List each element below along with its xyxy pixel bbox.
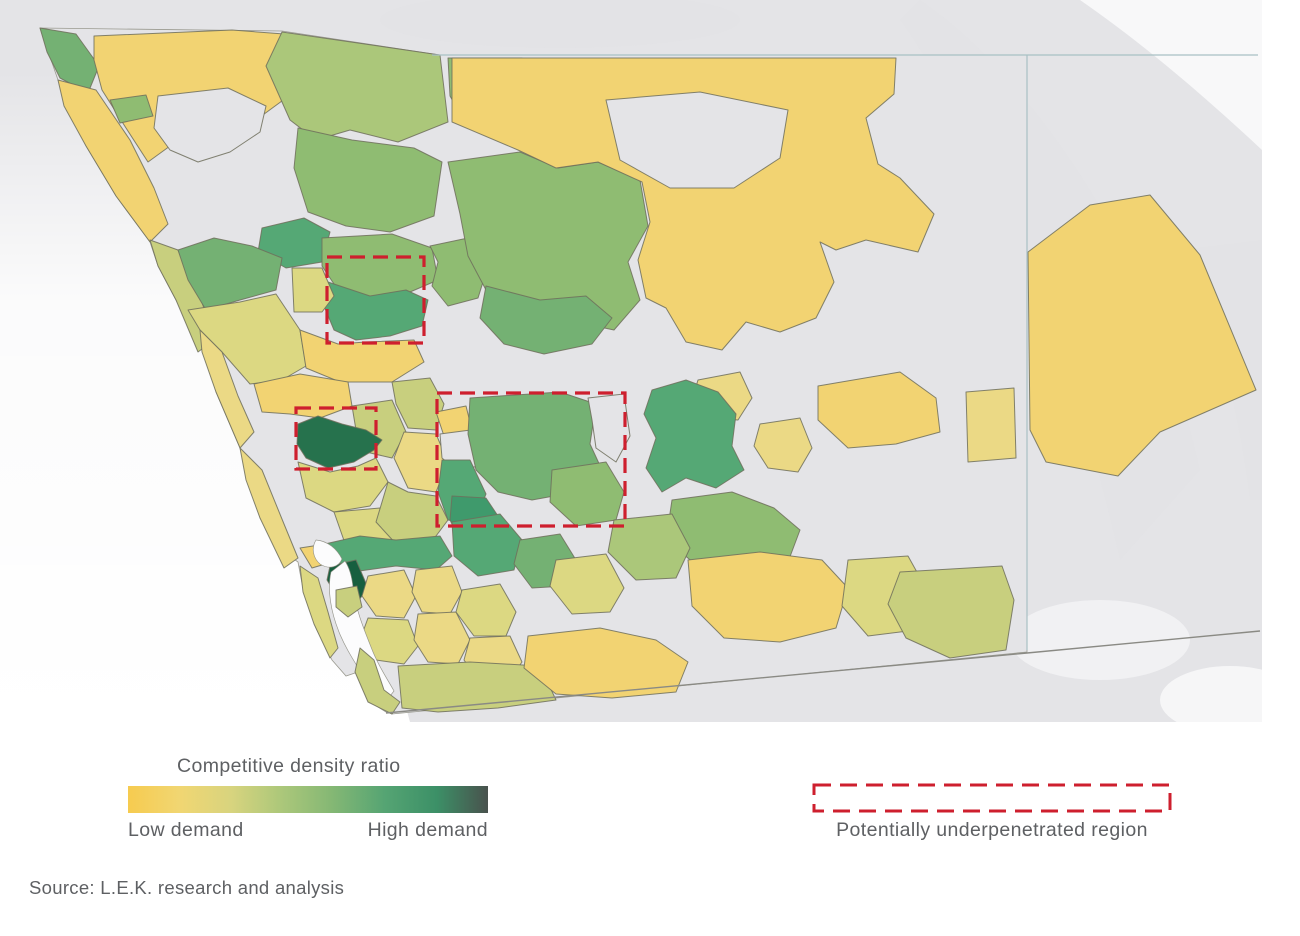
legend-high-label: High demand <box>368 819 488 842</box>
legend-gradient-bar <box>128 786 488 813</box>
map-svg <box>0 0 1262 722</box>
map-region <box>254 374 352 418</box>
legend-gradient-labels: Low demand High demand <box>128 819 488 842</box>
legend-low-label: Low demand <box>128 819 244 842</box>
map-region <box>966 388 1016 462</box>
underpenetrated-legend-box <box>812 783 1172 813</box>
choropleth-map <box>0 0 1262 722</box>
source-text: Source: L.E.K. research and analysis <box>29 877 344 899</box>
legend-title: Competitive density ratio <box>177 755 401 778</box>
underpenetrated-legend-label: Potentially underpenetrated region <box>806 819 1178 842</box>
page: { "legend": { "title": "Competitive dens… <box>0 0 1300 936</box>
